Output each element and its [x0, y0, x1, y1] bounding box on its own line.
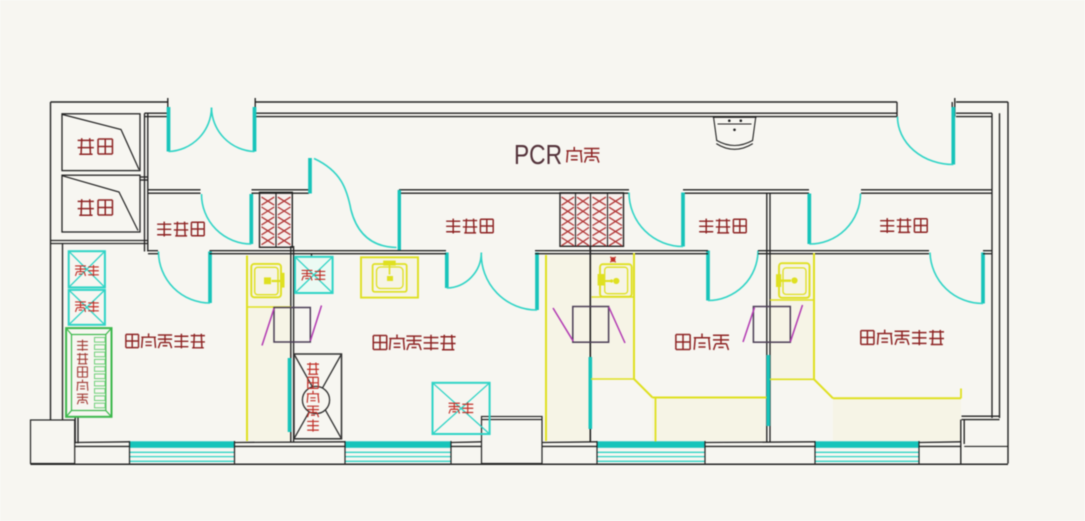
- svg-text:PCR: PCR: [514, 139, 562, 170]
